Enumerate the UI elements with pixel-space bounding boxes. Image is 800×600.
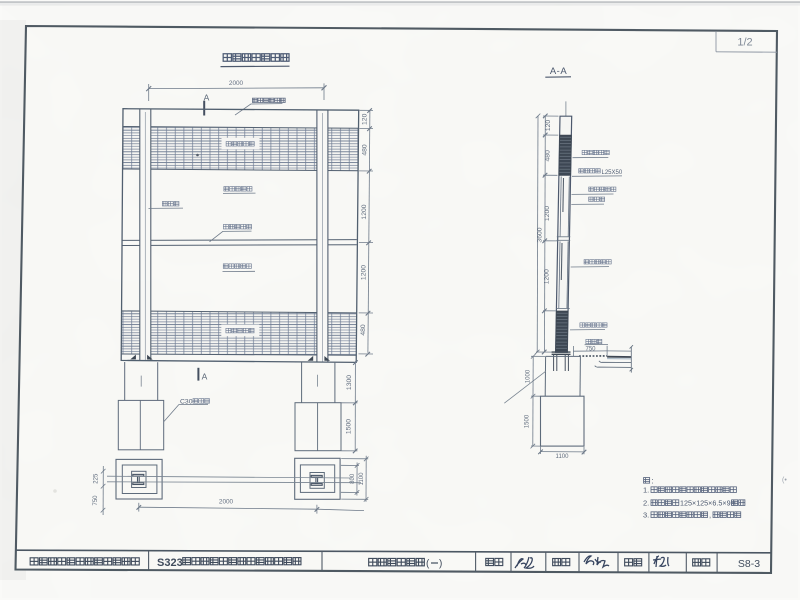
svg-text:(•: (• [782,477,787,484]
